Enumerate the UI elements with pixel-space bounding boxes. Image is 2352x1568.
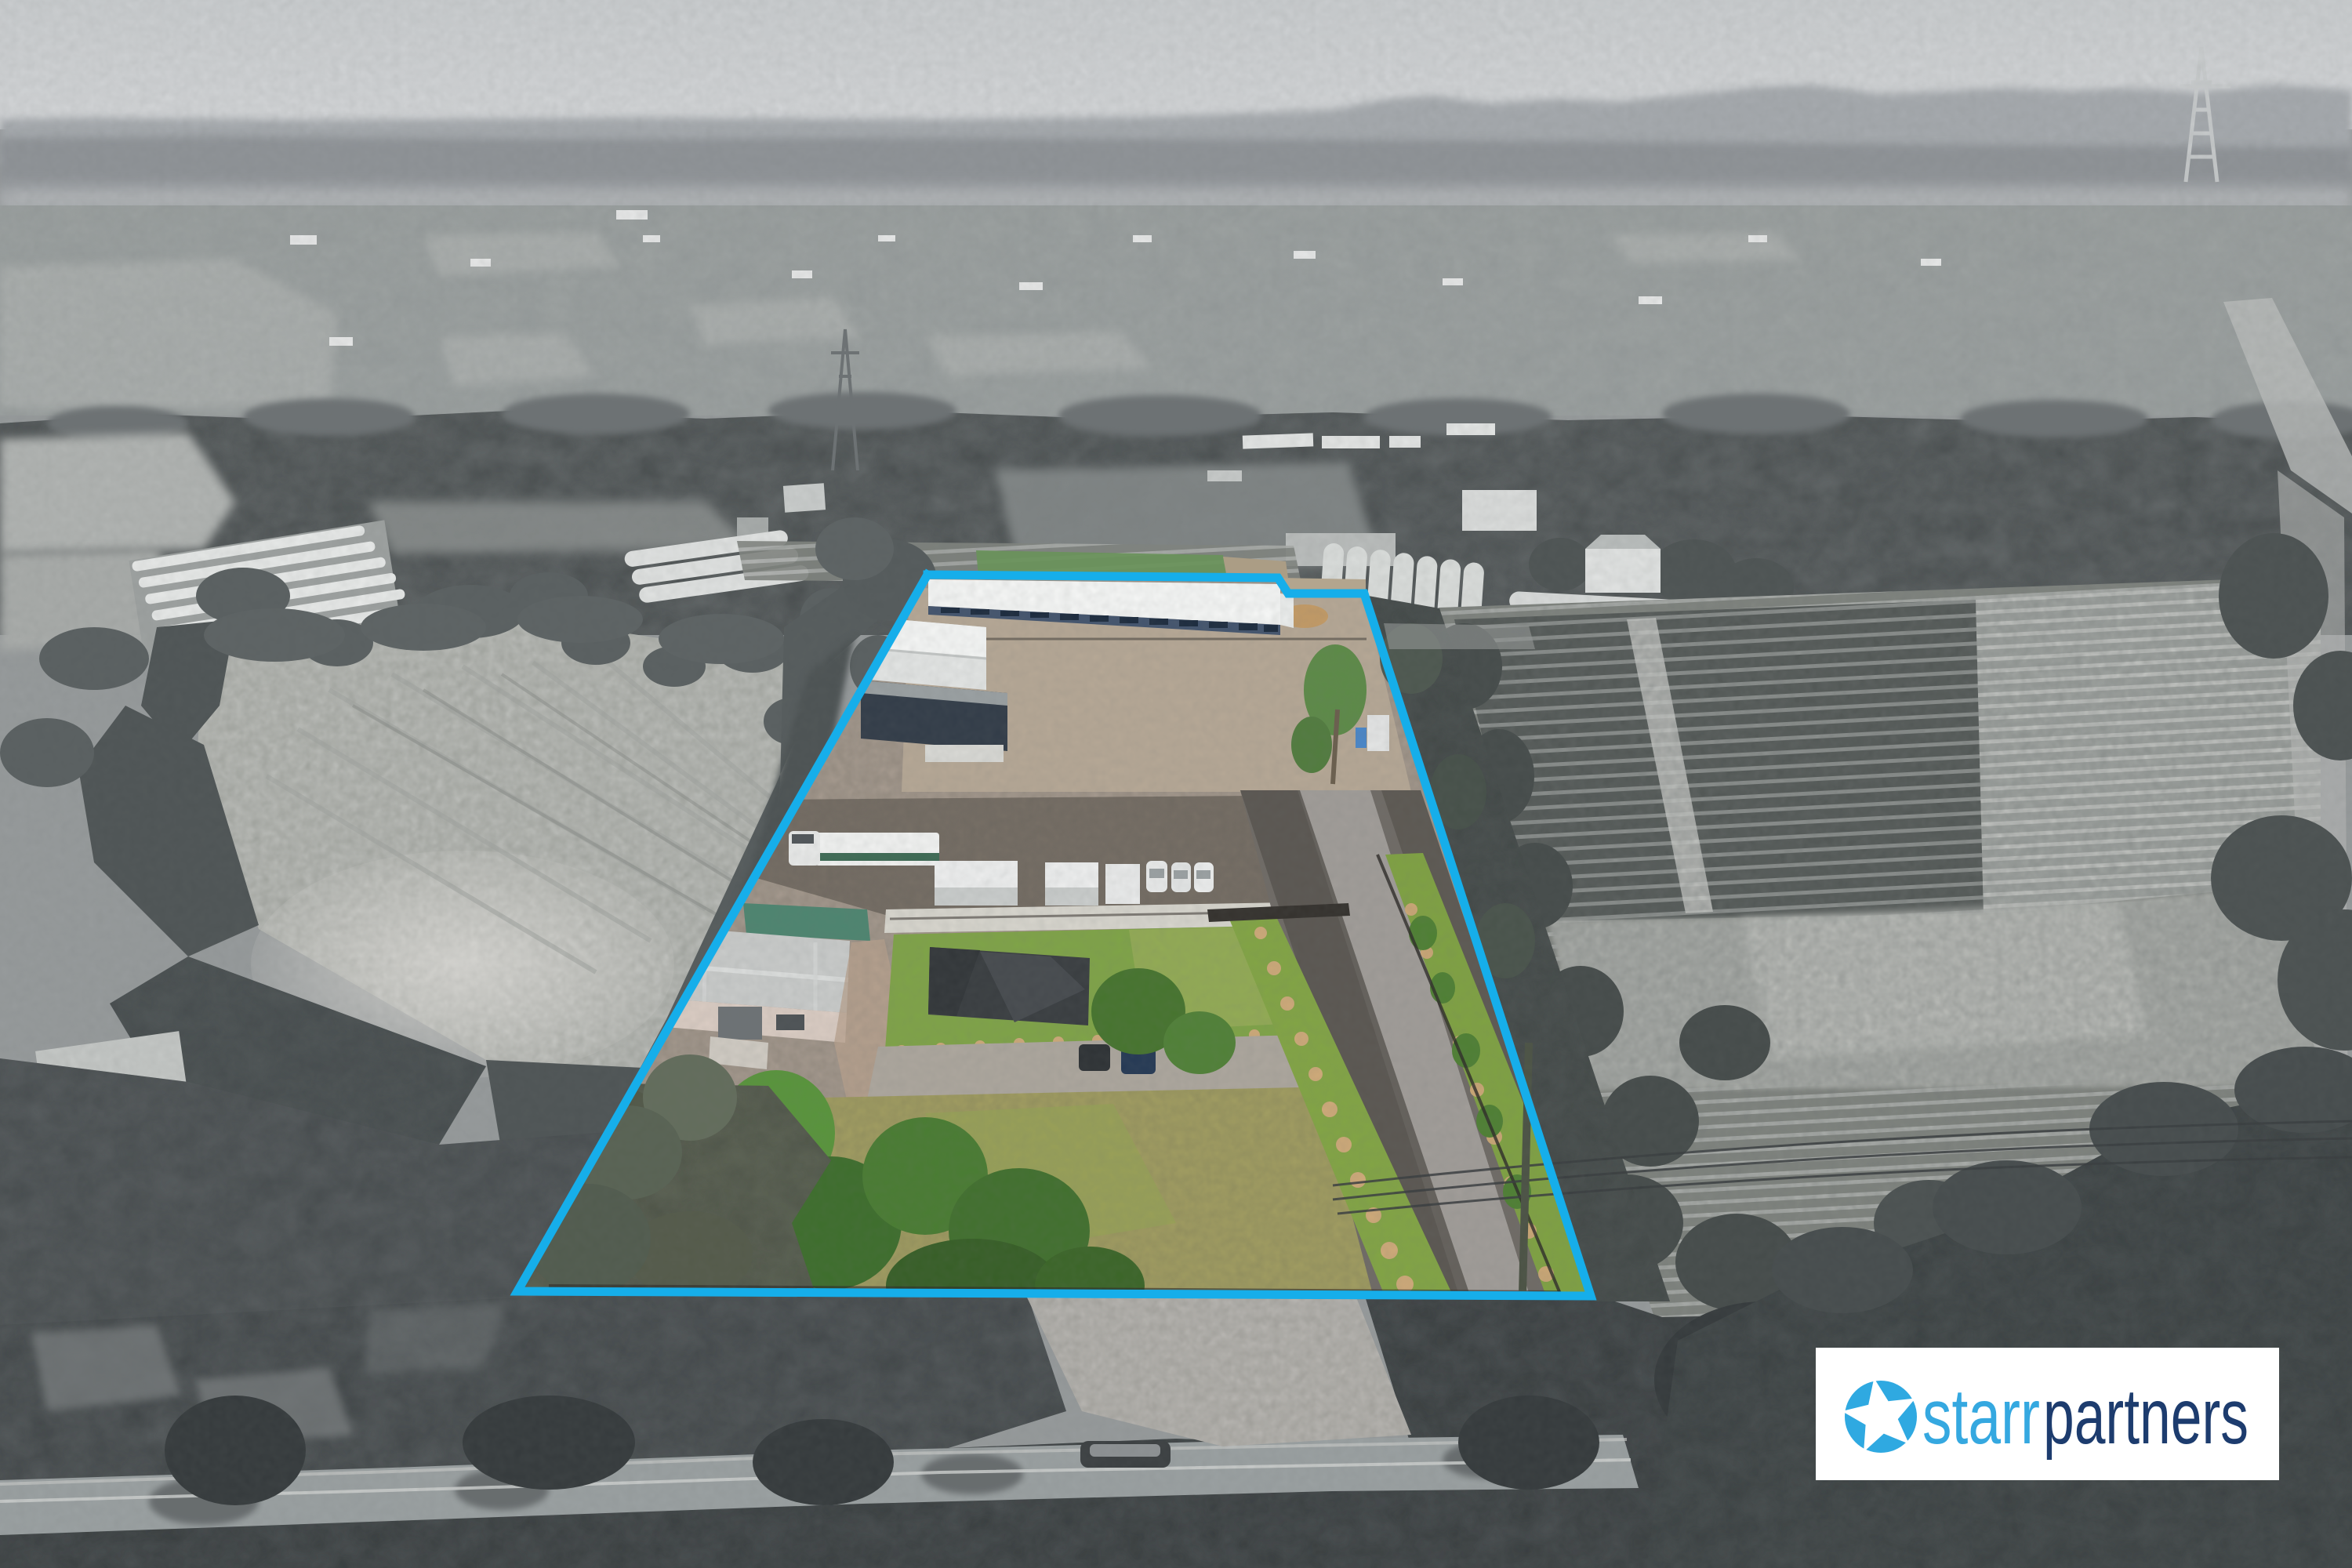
svg-text:partners: partners [2043,1373,2249,1461]
svg-text:starr: starr [1922,1373,2040,1461]
